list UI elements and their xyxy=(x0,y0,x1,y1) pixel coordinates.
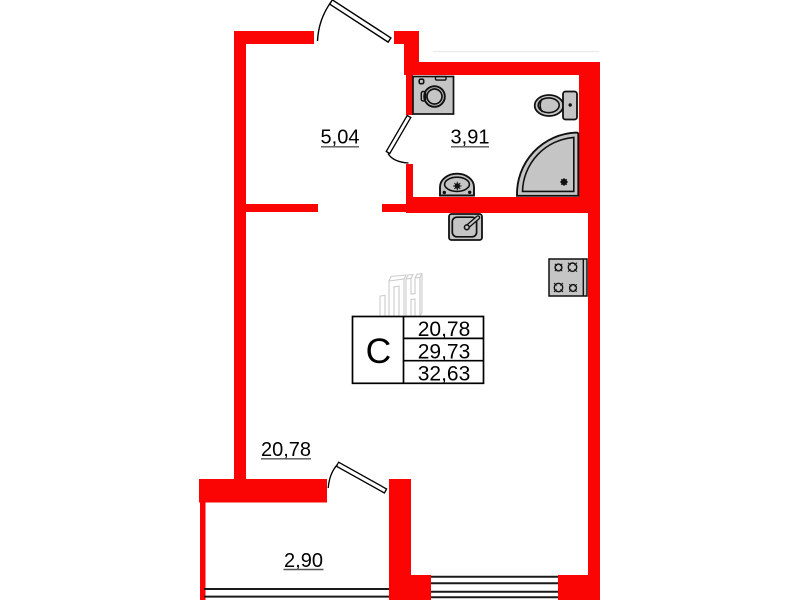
svg-text:32,63: 32,63 xyxy=(418,363,471,386)
svg-text:3,91: 3,91 xyxy=(451,127,490,149)
svg-text:20,78: 20,78 xyxy=(261,439,311,461)
svg-text:2,90: 2,90 xyxy=(284,550,323,572)
svg-text:5,04: 5,04 xyxy=(321,127,360,149)
svg-text:20,78: 20,78 xyxy=(418,318,471,341)
svg-text:С: С xyxy=(366,331,392,371)
svg-text:29,73: 29,73 xyxy=(418,341,471,364)
